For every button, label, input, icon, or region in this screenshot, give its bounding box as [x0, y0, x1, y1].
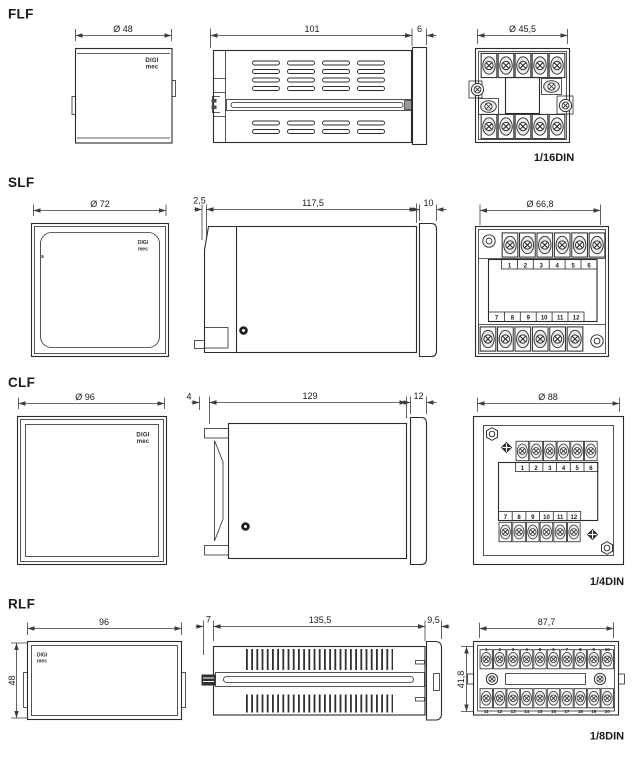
svg-text:10: 10: [605, 647, 611, 652]
clf-mounting-clamp: [215, 441, 224, 542]
din-size-label: 1/16DIN: [534, 152, 574, 164]
svg-text:15: 15: [537, 709, 543, 714]
clf-mounting-prong-bottom: [205, 546, 229, 556]
flf-side-rail: [227, 100, 412, 111]
rlf-row: RLF DIGI mec 96 48: [7, 597, 625, 743]
drawing-sheet: FLF DIGI mec Ø 48: [0, 0, 640, 768]
clf-side-view: 4 129 12: [186, 391, 436, 565]
clf-rear-width-dimension: Ø 88: [478, 392, 620, 412]
svg-text:12: 12: [497, 709, 503, 714]
dimension-text: 7: [206, 615, 211, 625]
dimension-text: Ø 72: [90, 199, 110, 209]
svg-text:12: 12: [571, 515, 578, 521]
clf-rear-view: 1 2 3 4 5 6 7 8 9 10 11 12 Ø 88: [474, 392, 625, 588]
row-label-clf: CLF: [8, 375, 35, 390]
rlf-front-view: DIGI mec 96 48: [7, 617, 186, 720]
clf-fixing-screw: [587, 529, 598, 540]
rlf-fixing-screw: [594, 673, 605, 684]
brand-logo: DIGI: [136, 433, 149, 439]
svg-text:13: 13: [511, 709, 517, 714]
flf-socket-center-hole: [506, 78, 540, 114]
rlf-front-right-tab: [182, 673, 186, 708]
slf-rear-width-dimension: Ø 66,8: [480, 199, 601, 225]
clf-side-dimensions: 4 129 12: [186, 391, 436, 424]
rlf-front-body: [28, 642, 182, 720]
clf-mounting-prong-top: [205, 429, 229, 439]
dimension-text: 6: [417, 24, 422, 34]
slf-rear-view: 1 2 3 4 5 6 7 8 9 10 11 12: [476, 199, 609, 357]
rlf-terminals-top: 1 2 3 4 5 6 7 8 9 10: [480, 647, 613, 669]
dimension-text: 135,5: [309, 615, 332, 625]
brand-logo: mec: [146, 65, 159, 71]
svg-text:7: 7: [495, 316, 499, 322]
slf-side-view: 2,5 117,5 10: [193, 196, 446, 357]
svg-text:14: 14: [524, 709, 530, 714]
slf-side-dimensions: 2,5 117,5 10: [193, 196, 446, 241]
slf-row: SLF s DIGI mec Ø 72: [8, 175, 609, 357]
rlf-side-dimensions: 7 135,5 9,5: [196, 615, 450, 656]
slf-corner-screw: [591, 335, 603, 347]
rlf-center-slot: [506, 674, 586, 685]
dimension-text: 129: [302, 391, 317, 401]
slf-terminal-numbers-top: 1 2 3 4 5 6: [502, 260, 598, 270]
clf-side-body: [229, 424, 407, 559]
clf-front-view: DIGI mec Ø 96: [18, 392, 167, 565]
svg-text:11: 11: [557, 316, 564, 322]
rlf-rear-view: 1 2 3 4 5 6 7 8 9 10 11 12: [456, 617, 625, 743]
clf-fixing-screw: [501, 442, 512, 453]
flf-front-view: DIGI mec Ø 48: [72, 24, 176, 143]
rlf-side-connector: [202, 675, 216, 686]
dimension-text: 48: [7, 675, 17, 685]
rlf-fixing-screw: [486, 673, 497, 684]
dimension-text: 96: [99, 617, 109, 627]
slf-side-bezel: [420, 224, 437, 357]
clf-hex-nut: [486, 428, 497, 441]
svg-text:10: 10: [541, 316, 548, 322]
rlf-terminals-bottom: 11 12 13 14 15 16 17 18 19 20: [480, 689, 613, 714]
slf-front-width-dimension: Ø 72: [34, 199, 167, 216]
row-label-slf: SLF: [8, 175, 34, 190]
dimension-text: 9,5: [427, 615, 440, 625]
row-label-flf: FLF: [8, 7, 34, 22]
flf-row: FLF DIGI mec Ø 48: [8, 7, 574, 165]
rlf-side-view: 7 135,5 9,5: [196, 615, 450, 721]
flf-rear-view: Ø 45,5 1/16DIN: [469, 24, 574, 164]
flf-side-bezel: [413, 48, 427, 145]
dimension-text: Ø 88: [538, 392, 558, 402]
flf-rear-width-dimension: Ø 45,5: [478, 24, 568, 44]
svg-text:18: 18: [578, 709, 584, 714]
row-label-rlf: RLF: [8, 597, 35, 612]
clf-rear-body: [474, 417, 624, 565]
slf-terminal-numbers-bottom: 7 8 9 10 11 12: [489, 312, 585, 322]
front-marking: s: [41, 254, 44, 260]
brand-logo: DIGI: [138, 240, 149, 246]
flf-socket-side-terminals: [469, 79, 573, 115]
brand-logo: mec: [137, 439, 150, 445]
rlf-middle-band: [468, 673, 625, 684]
svg-text:9: 9: [527, 316, 531, 322]
rlf-front-dimensions: 96 48: [7, 617, 182, 718]
din-size-label: 1/8DIN: [590, 731, 624, 743]
svg-text:17: 17: [564, 709, 570, 714]
slf-corner-screw: [483, 235, 495, 247]
svg-text:11: 11: [557, 515, 564, 521]
brand-logo: mec: [37, 659, 47, 665]
svg-text:11: 11: [484, 709, 489, 714]
dimension-text: 41,8: [456, 671, 466, 689]
clf-side-bezel: [411, 418, 427, 565]
slf-side-rear-cap: [205, 227, 237, 353]
flf-vent-slots: [253, 61, 385, 134]
dimension-text: Ø 45,5: [509, 24, 536, 34]
dimension-text: 12: [413, 391, 423, 401]
svg-text:16: 16: [551, 709, 557, 714]
din-size-label: 1/4DIN: [590, 576, 624, 588]
flf-side-dimensions: 101 6: [211, 24, 437, 48]
flf-front-width-dimension: Ø 48: [76, 24, 172, 41]
dimension-text: 4: [186, 392, 191, 402]
slf-front-view: s DIGI mec Ø 72: [32, 199, 169, 357]
rlf-side-rail: [216, 673, 425, 687]
dimension-text: Ø 48: [113, 24, 133, 34]
dimension-text: 2,5: [193, 196, 206, 206]
flf-side-view: 101 6: [211, 24, 437, 145]
svg-text:8: 8: [511, 316, 515, 322]
svg-text:12: 12: [573, 316, 580, 322]
dimension-text: Ø 66,8: [526, 199, 553, 209]
svg-text:10: 10: [543, 515, 550, 521]
dimension-text: 10: [423, 198, 433, 208]
drawing-canvas: FLF DIGI mec Ø 48: [0, 0, 640, 768]
dimension-text: Ø 96: [75, 392, 95, 402]
brand-logo: mec: [138, 247, 148, 253]
clf-terminal-numbers-bottom: 7 8 9 10 11 12: [499, 512, 581, 522]
clf-terminal-numbers-top: 1 2 3 4 5 6: [516, 463, 598, 473]
dimension-text: 87,7: [538, 617, 556, 627]
svg-text:20: 20: [605, 709, 611, 714]
rlf-front-face: [32, 646, 178, 716]
brand-logo: DIGI: [145, 58, 158, 64]
clf-row: CLF DIGI mec Ø 96: [8, 375, 624, 588]
svg-text:19: 19: [591, 709, 597, 714]
dimension-text: 101: [304, 24, 319, 34]
clf-hex-nut: [601, 542, 612, 555]
slf-side-body: [237, 227, 417, 353]
clf-front-width-dimension: Ø 96: [19, 392, 165, 409]
rlf-front-left-tab: [24, 673, 28, 708]
dimension-text: 117,5: [302, 198, 324, 208]
